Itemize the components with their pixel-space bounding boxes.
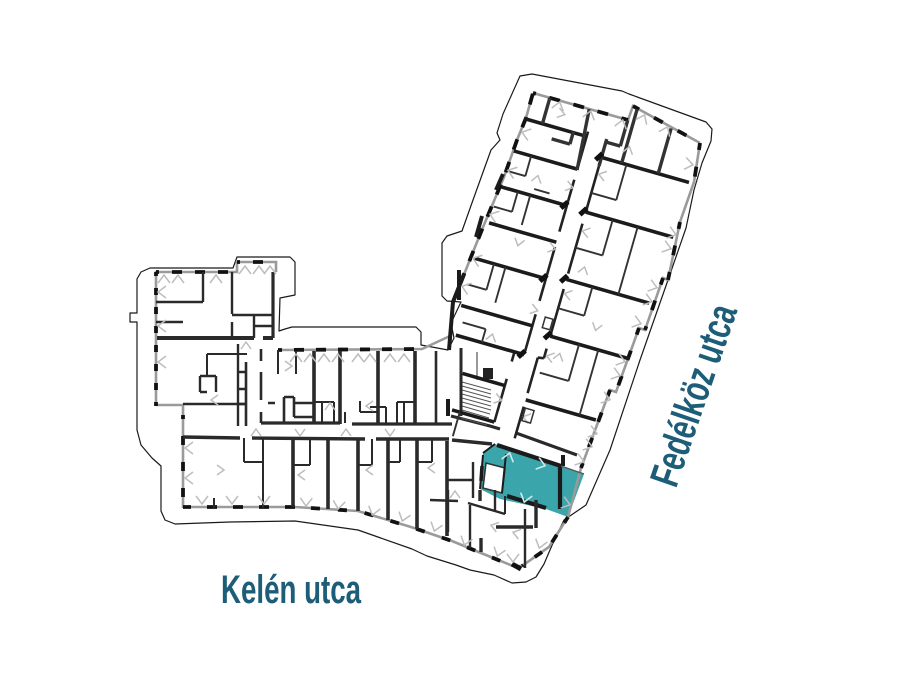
svg-text:Kelén utca: Kelén utca	[221, 568, 362, 612]
